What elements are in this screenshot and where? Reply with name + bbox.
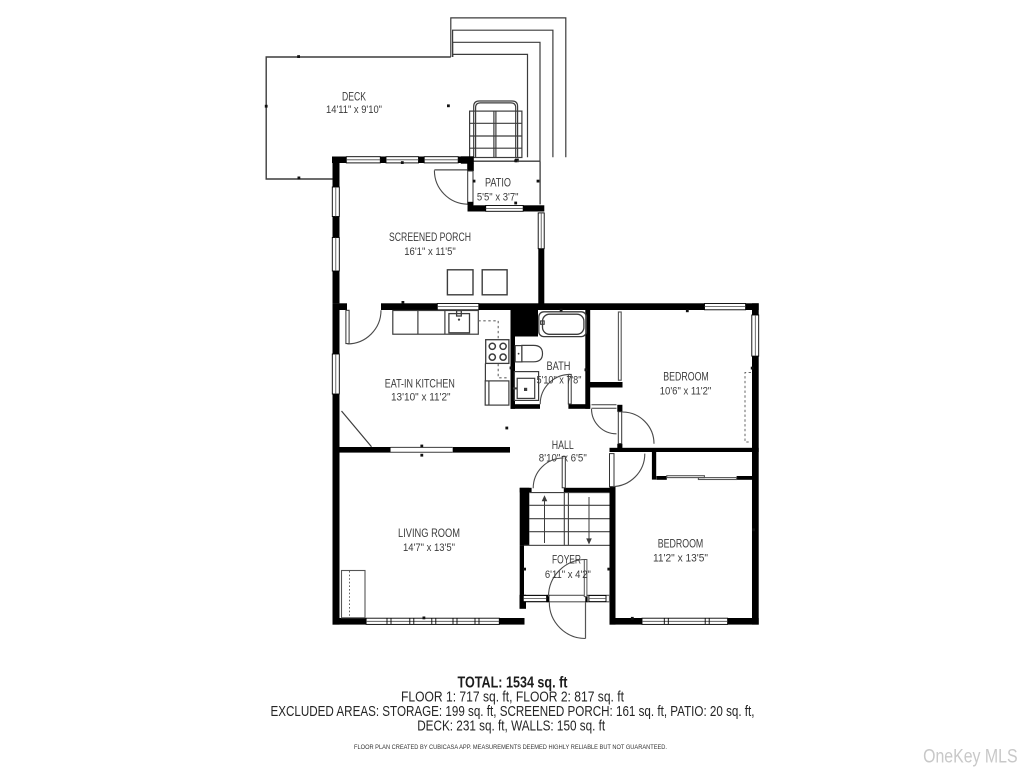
svg-text:BATH: BATH bbox=[547, 359, 571, 373]
svg-text:HALL: HALL bbox=[552, 438, 574, 452]
svg-text:LIVING ROOM: LIVING ROOM bbox=[398, 526, 460, 540]
svg-text:13'10" x 11'2": 13'10" x 11'2" bbox=[391, 392, 451, 404]
svg-text:5'5" x 3'7": 5'5" x 3'7" bbox=[477, 192, 519, 204]
svg-text:PATIO: PATIO bbox=[485, 176, 511, 190]
svg-text:FOYER: FOYER bbox=[552, 553, 581, 567]
svg-text:SCREENED PORCH: SCREENED PORCH bbox=[389, 230, 471, 244]
svg-text:16'1" x 11'5": 16'1" x 11'5" bbox=[404, 246, 456, 258]
svg-text:DECK: DECK bbox=[342, 90, 366, 104]
svg-text:11'2" x 13'5": 11'2" x 13'5" bbox=[653, 553, 708, 565]
svg-text:14'11" x 9'10": 14'11" x 9'10" bbox=[326, 104, 382, 116]
svg-text:BEDROOM: BEDROOM bbox=[663, 369, 709, 383]
svg-text:OneKey MLS: OneKey MLS bbox=[923, 746, 1018, 768]
svg-text:FLOOR PLAN CREATED BY CUBICASA: FLOOR PLAN CREATED BY CUBICASA APP. MEAS… bbox=[354, 744, 667, 751]
svg-text:EAT-IN KITCHEN: EAT-IN KITCHEN bbox=[385, 377, 455, 391]
svg-text:10'6" x 11'2": 10'6" x 11'2" bbox=[660, 385, 712, 397]
svg-text:14'7" x 13'5": 14'7" x 13'5" bbox=[403, 542, 455, 554]
svg-text:DECK: 231 sq. ft, WALLS: 150 s: DECK: 231 sq. ft, WALLS: 150 sq. ft bbox=[417, 718, 606, 735]
svg-text:6'11" x 4'2": 6'11" x 4'2" bbox=[545, 569, 591, 581]
svg-text:5'10" x 7'8": 5'10" x 7'8" bbox=[537, 374, 582, 386]
svg-text:BEDROOM: BEDROOM bbox=[658, 537, 704, 551]
